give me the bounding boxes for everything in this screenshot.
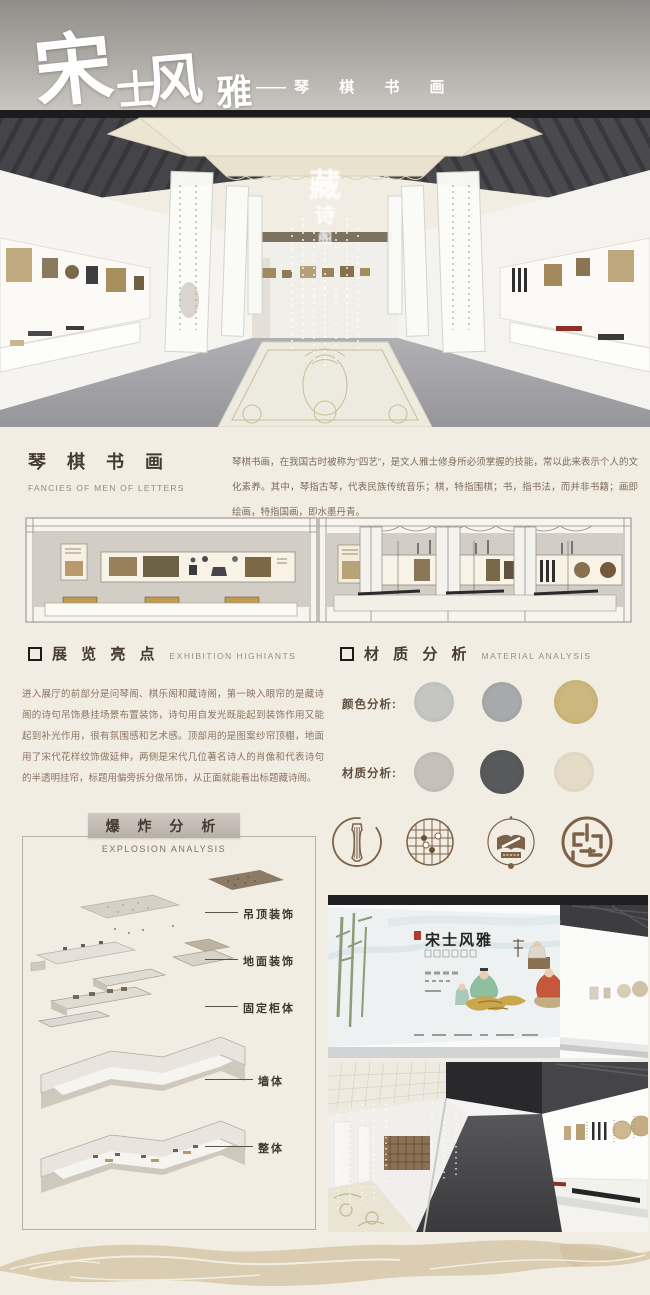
subtitle-dash: —— — [256, 79, 286, 96]
book-brush-icon — [483, 814, 539, 870]
explosion-diagram-box — [22, 836, 316, 1230]
texture-analysis-label: 材质分析: — [342, 765, 397, 781]
elevation-drawing-left — [25, 517, 318, 623]
highlights-paragraph: 进入展厅的前部分是问琴阁、棋乐阁和藏诗阁，第一映入眼帘的是藏诗阁的诗句吊饰悬挂场… — [22, 684, 324, 789]
leader-line — [205, 1146, 253, 1147]
intro-heading-block: 琴 棋 书 画 FANCIES OF MEN OF LETTERS — [28, 448, 185, 493]
explosion-label-ceiling: 吊顶装饰 — [243, 906, 295, 922]
highlights-title-en: EXHIBITION HIGHIANTS — [170, 651, 297, 661]
intro-heading: 琴 棋 书 画 — [28, 448, 185, 474]
explosion-label-wall: 墙体 — [258, 1073, 284, 1089]
highlights-section-head: 展 览 亮 点 EXHIBITION HIGHIANTS — [28, 643, 296, 664]
explosion-diagram — [23, 837, 313, 1227]
explosion-label-floor: 地面装饰 — [243, 953, 295, 969]
elevation-drawing-right — [318, 517, 632, 623]
square-bullet-icon — [28, 647, 42, 661]
explosion-title-ribbon: 爆 炸 分 析 — [88, 813, 240, 838]
texture-swatch-2 — [480, 750, 524, 794]
hall-glow-char-1: 藏 — [309, 166, 341, 204]
wave-ornament — [0, 1233, 650, 1295]
subtitle-text: 琴 棋 书 画 — [294, 79, 458, 96]
entrance-render: 宋士风雅 — [328, 895, 648, 1058]
hall-glow-char-3: 阁 — [318, 230, 332, 247]
color-swatch-2 — [482, 682, 522, 722]
leader-line — [205, 1006, 238, 1007]
title-char: 风 — [143, 34, 206, 120]
color-swatch-3 — [554, 680, 598, 724]
leader-line — [205, 959, 238, 960]
seal-icon — [559, 814, 615, 870]
go-board-icon — [402, 814, 458, 870]
texture-swatch-3 — [554, 752, 594, 792]
exhibition-design-poster: 藏 诗 阁 宋 士 风 雅 ——琴 棋 书 画 琴 棋 书 画 FANCIES … — [0, 0, 650, 1295]
color-analysis-label: 颜色分析: — [342, 696, 397, 712]
color-swatch-1 — [414, 682, 454, 722]
intro-heading-en: FANCIES OF MEN OF LETTERS — [28, 483, 185, 493]
square-bullet-icon — [340, 647, 354, 661]
explosion-label-whole: 整体 — [258, 1140, 284, 1156]
highlights-title: 展 览 亮 点 — [52, 643, 160, 664]
poster-title: 宋 士 风 雅 ——琴 棋 书 画 — [34, 6, 454, 126]
explosion-title-en: EXPLOSION ANALYSIS — [72, 844, 256, 854]
leader-line — [205, 1079, 253, 1080]
material-title-en: MATERIAL ANALYSIS — [482, 651, 592, 661]
explosion-label-cabinet: 固定柜体 — [243, 1000, 295, 1016]
intro-paragraph: 琴棋书画，在我国古时被称为“四艺”，是文人雅士修身所必须掌握的技能，常以此来表示… — [232, 450, 638, 525]
qin-icon — [329, 814, 385, 870]
material-title: 材 质 分 析 — [364, 643, 472, 664]
poster-subtitle: ——琴 棋 书 画 — [256, 76, 458, 97]
leader-line — [205, 912, 238, 913]
entrance-title-text: 宋士风雅 — [424, 931, 493, 949]
title-char: 宋 — [28, 4, 117, 124]
corridor-render — [328, 1062, 648, 1232]
texture-swatch-1 — [414, 752, 454, 792]
hall-glow-char-2: 诗 — [315, 203, 335, 227]
title-char: 雅 — [215, 63, 254, 117]
material-section-head: 材 质 分 析 MATERIAL ANALYSIS — [340, 643, 591, 664]
